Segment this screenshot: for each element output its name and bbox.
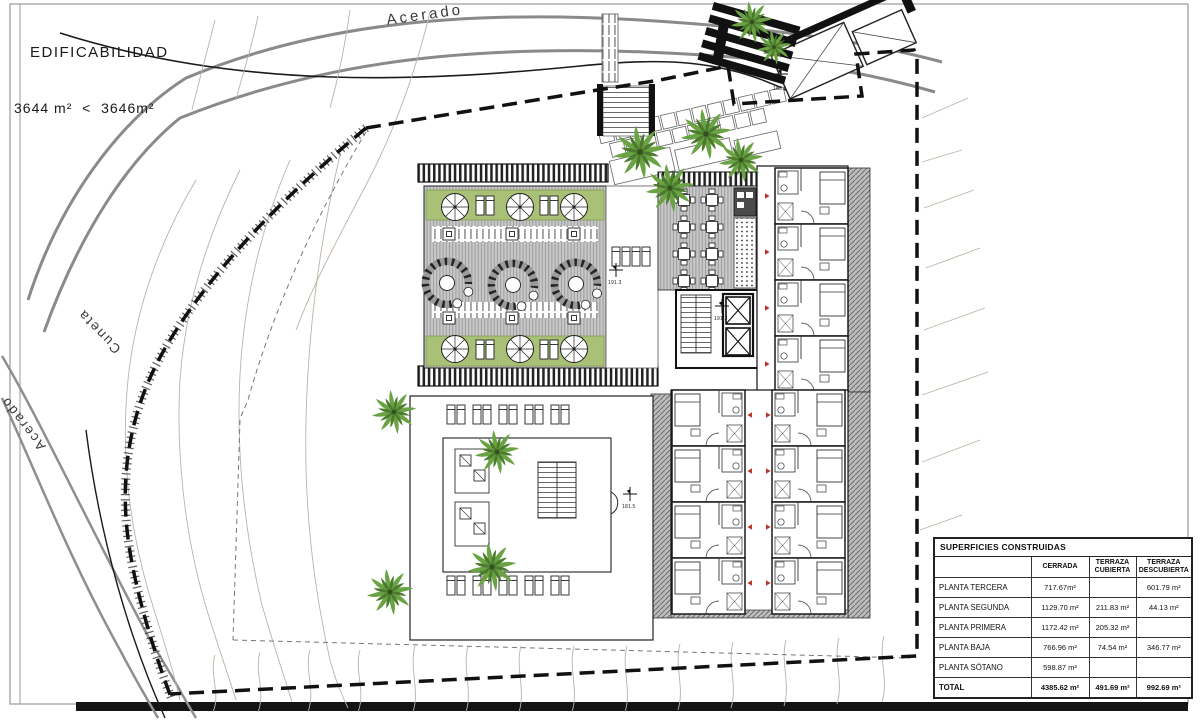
apartment-unit bbox=[772, 446, 845, 502]
cell-descubierta bbox=[1136, 658, 1192, 678]
pergola-strip-bottom bbox=[418, 366, 658, 386]
row-label: PLANTA TERCERA bbox=[934, 578, 1031, 598]
apartment-unit bbox=[775, 280, 848, 336]
row-label: PLANTA PRIMERA bbox=[934, 618, 1031, 638]
header-terraza-descubierta: TERRAZA DESCUBIERTA bbox=[1136, 557, 1192, 578]
cell-cubierta: 211.83 m² bbox=[1089, 598, 1136, 618]
cell-cubierta bbox=[1089, 658, 1136, 678]
elevator-icon bbox=[726, 297, 750, 324]
pool-deck bbox=[410, 396, 653, 640]
header-terraza-cubierta: TERRAZA CUBIERTA bbox=[1089, 557, 1136, 578]
pergola-strip-top bbox=[418, 164, 608, 182]
level-value-pool: 181.5 bbox=[622, 504, 636, 510]
cell-cubierta: 205.32 m² bbox=[1089, 618, 1136, 638]
cell-descubierta: 44.13 m² bbox=[1136, 598, 1192, 618]
table-row: PLANTA SÓTANO 598.87 m² bbox=[934, 658, 1192, 678]
apartments-north bbox=[757, 166, 870, 392]
table-row: PLANTA BAJA 766.96 m² 74.54 m² 346.77 m² bbox=[934, 638, 1192, 658]
cell-cubierta: 491.69 m² bbox=[1089, 678, 1136, 699]
table-row: PLANTA TERCERA 717.67m² 601.79 m² bbox=[934, 578, 1192, 598]
edificability-note: EDIFICABILIDAD 3644 m² < 3646m² bbox=[14, 8, 169, 134]
apartment-unit bbox=[672, 390, 745, 446]
row-label: PLANTA SEGUNDA bbox=[934, 598, 1031, 618]
row-label: PLANTA BAJA bbox=[934, 638, 1031, 658]
apartments-south bbox=[651, 390, 870, 618]
roof-terrace bbox=[417, 164, 658, 386]
apartment-unit bbox=[672, 558, 745, 614]
level-value-entrance: 183.5 bbox=[773, 86, 787, 92]
header-cerrada: CERRADA bbox=[1031, 557, 1089, 578]
apartment-unit bbox=[672, 446, 745, 502]
cell-cubierta bbox=[1089, 578, 1136, 598]
buffet-counter bbox=[734, 218, 756, 288]
edificability-title: EDIFICABILIDAD bbox=[30, 44, 169, 61]
apartment-unit bbox=[775, 168, 848, 224]
street-stairs bbox=[597, 14, 655, 136]
apartment-unit bbox=[772, 502, 845, 558]
elevator-icon bbox=[726, 328, 750, 355]
table-total-row: TOTAL 4385.62 m² 491.69 m² 992.69 m² bbox=[934, 678, 1192, 699]
table-row: PLANTA PRIMERA 1172.42 m² 205.32 m² bbox=[934, 618, 1192, 638]
level-value-roof: 191.3 bbox=[608, 280, 622, 286]
cell-cerrada: 4385.62 m² bbox=[1031, 678, 1089, 699]
cell-cerrada: 1172.42 m² bbox=[1031, 618, 1089, 638]
cell-descubierta: 601.79 m² bbox=[1136, 578, 1192, 598]
terrace-strip bbox=[848, 392, 870, 618]
apartment-unit bbox=[775, 224, 848, 280]
row-label: TOTAL bbox=[934, 678, 1031, 699]
header-empty bbox=[934, 557, 1031, 578]
table-title-row: SUPERFICIES CONSTRUIDAS bbox=[934, 538, 1192, 557]
terrace-strip bbox=[651, 394, 671, 618]
apartment-unit bbox=[672, 502, 745, 558]
terrace-strip bbox=[848, 168, 870, 392]
cell-cerrada: 717.67m² bbox=[1031, 578, 1089, 598]
cell-cerrada: 1129.70 m² bbox=[1031, 598, 1089, 618]
cell-cerrada: 598.87 m² bbox=[1031, 658, 1089, 678]
apartment-unit bbox=[772, 558, 845, 614]
cuneta-ticks bbox=[125, 128, 366, 700]
site-plan-sheet: EDIFICABILIDAD 3644 m² < 3646m² Acerado … bbox=[0, 0, 1200, 720]
cell-cubierta: 74.54 m² bbox=[1089, 638, 1136, 658]
areas-table: SUPERFICIES CONSTRUIDAS CERRADA TERRAZA … bbox=[933, 537, 1193, 699]
cell-descubierta: 992.69 m² bbox=[1136, 678, 1192, 699]
cell-descubierta: 346.77 m² bbox=[1136, 638, 1192, 658]
level-value-core: 191.3 bbox=[714, 316, 728, 322]
edificability-value: 3644 m² < 3646m² bbox=[14, 100, 169, 116]
apartment-unit bbox=[772, 390, 845, 446]
cell-cerrada: 766.96 m² bbox=[1031, 638, 1089, 658]
cell-descubierta bbox=[1136, 618, 1192, 638]
table-header-row: CERRADA TERRAZA CUBIERTA TERRAZA DESCUBI… bbox=[934, 557, 1192, 578]
stair-elevator-core bbox=[676, 290, 767, 368]
table-row: PLANTA SEGUNDA 1129.70 m² 211.83 m² 44.1… bbox=[934, 598, 1192, 618]
row-label: PLANTA SÓTANO bbox=[934, 658, 1031, 678]
apartment-unit bbox=[775, 336, 848, 392]
table-title: SUPERFICIES CONSTRUIDAS bbox=[934, 538, 1192, 557]
deck-gap bbox=[606, 186, 658, 368]
